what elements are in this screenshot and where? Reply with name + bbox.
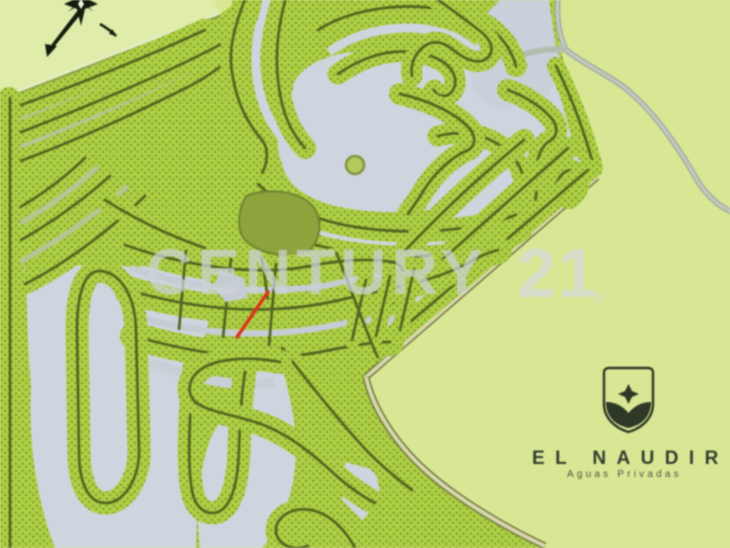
svg-text:CENTURY: CENTURY — [146, 236, 488, 308]
svg-text:EL NAUDIR: EL NAUDIR — [532, 448, 729, 469]
svg-text:21: 21 — [517, 234, 599, 312]
svg-text:®: ® — [594, 290, 605, 307]
svg-text:Aguas Privadas: Aguas Privadas — [567, 469, 682, 480]
